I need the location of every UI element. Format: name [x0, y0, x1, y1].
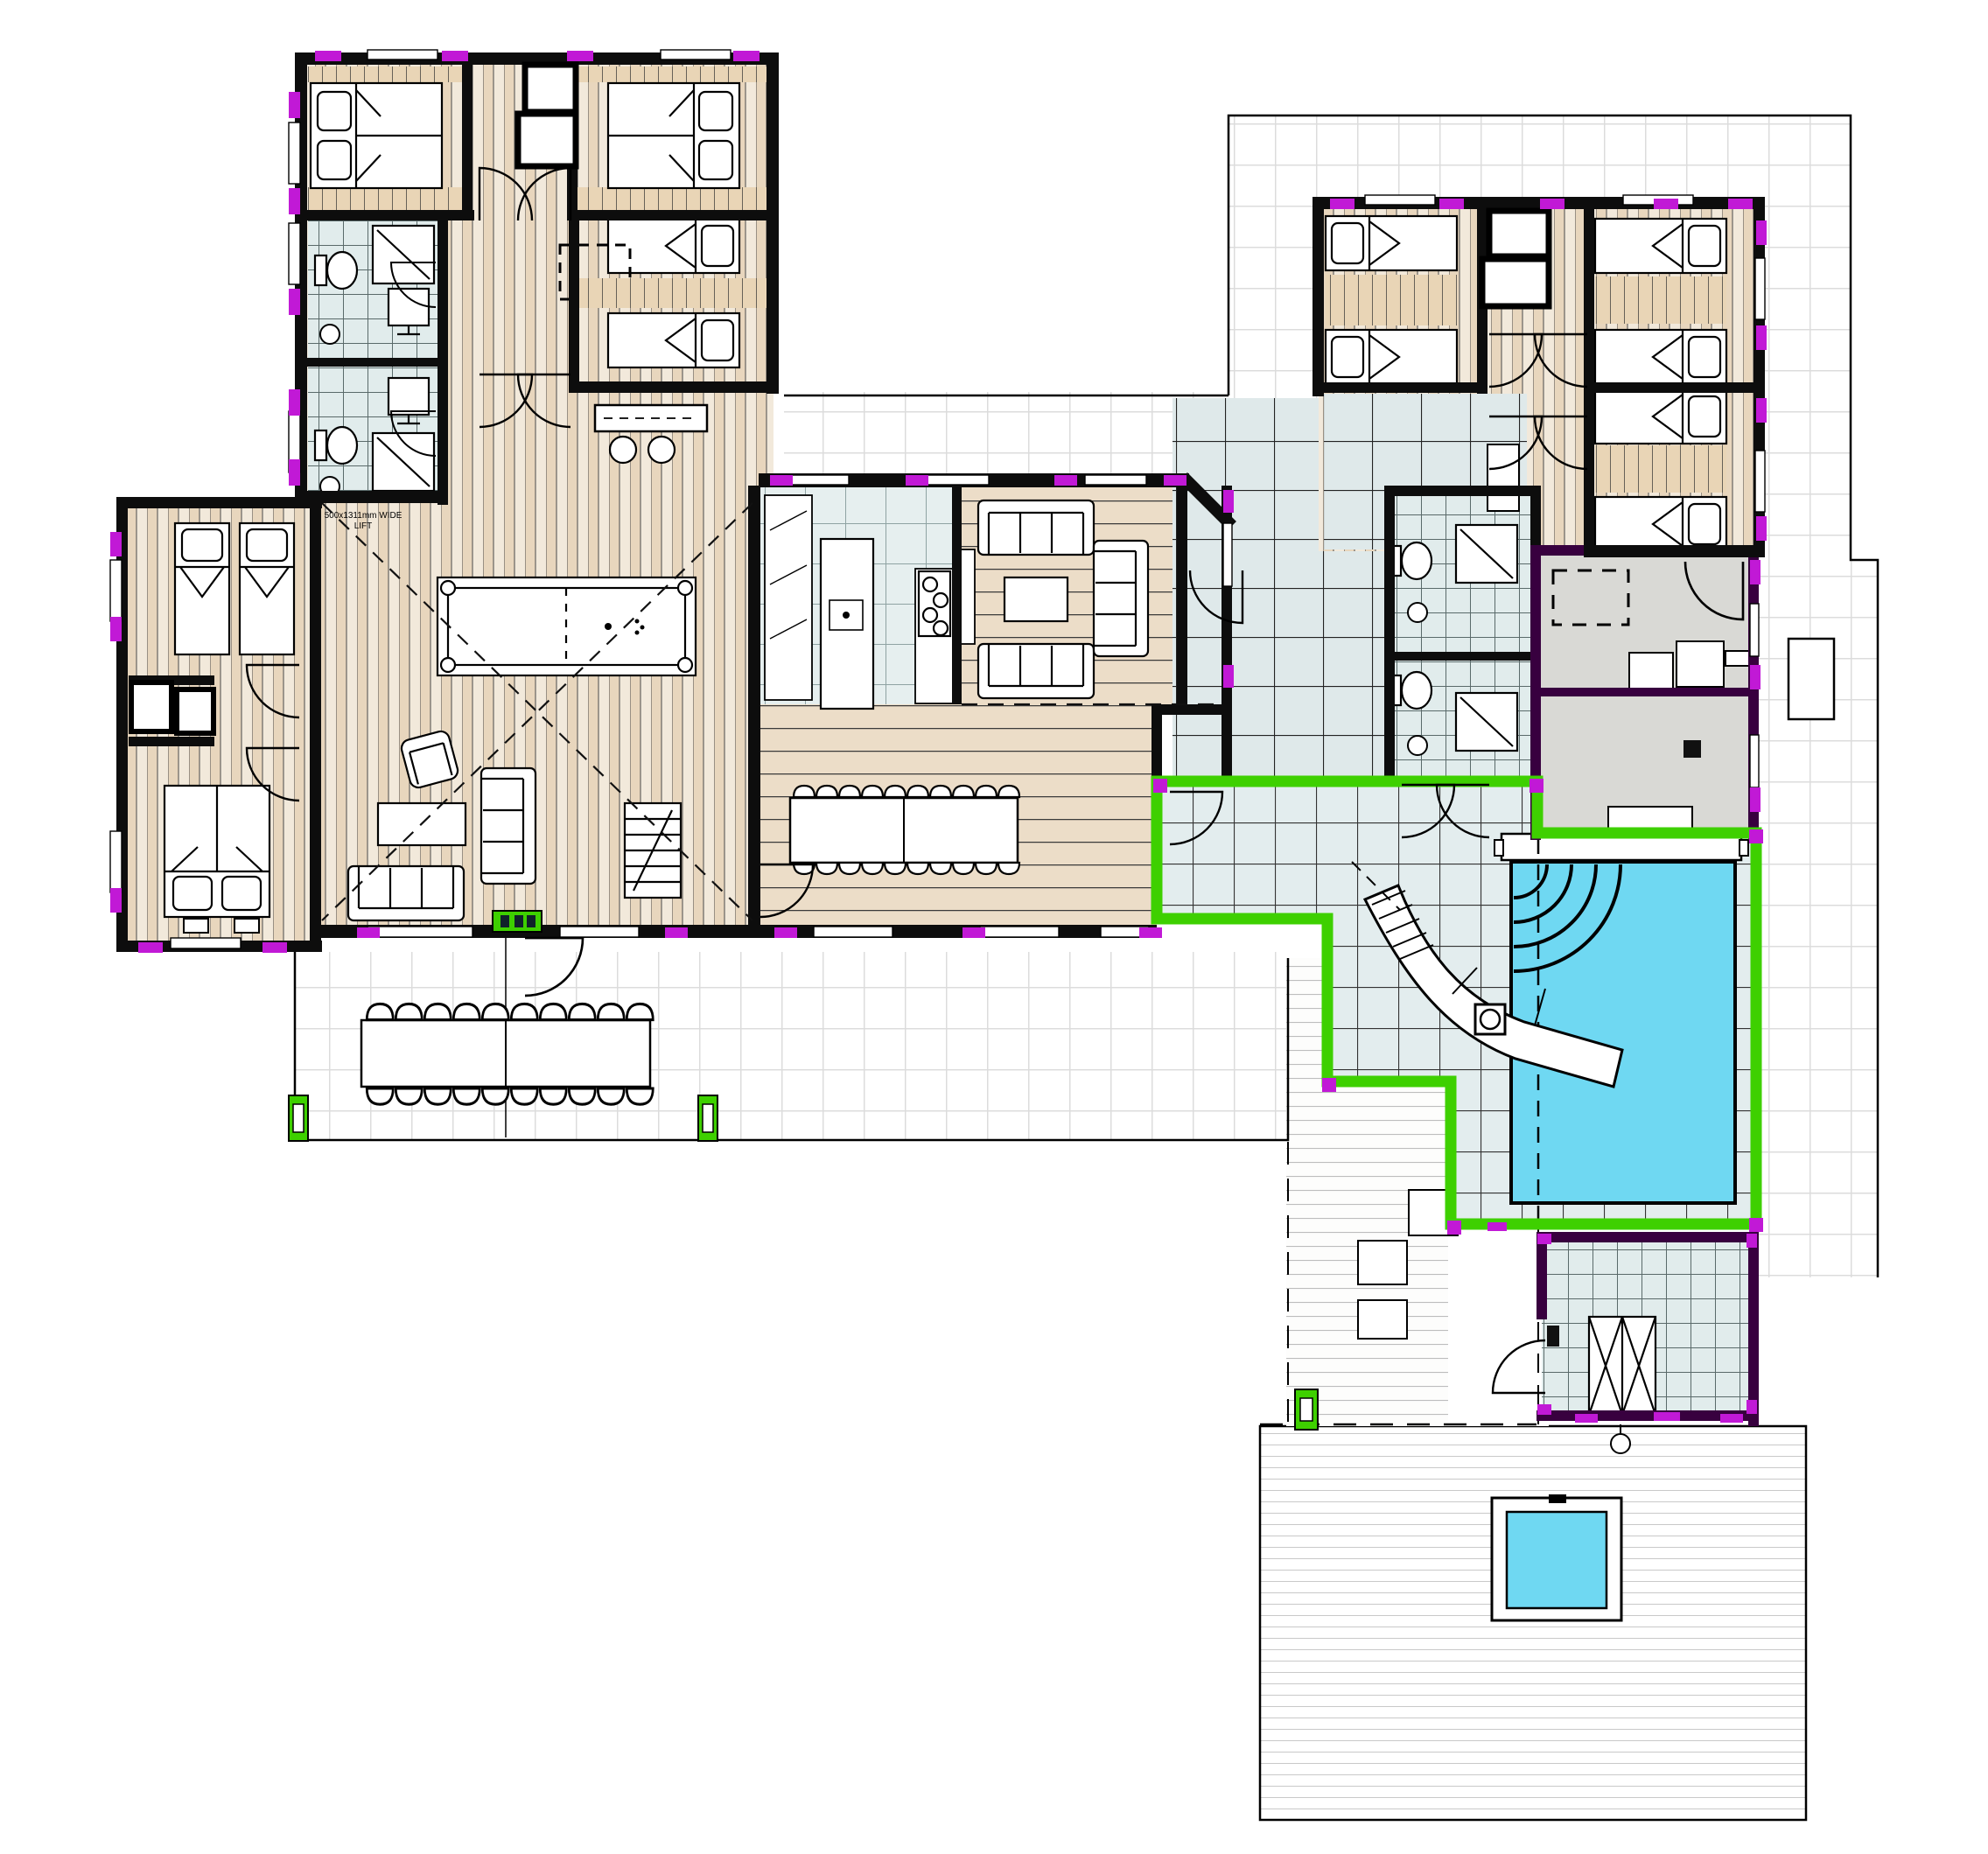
window-sensor — [110, 617, 122, 641]
bed-single — [1595, 389, 1726, 444]
window-sensor — [1756, 398, 1767, 423]
window-sensor — [1750, 787, 1760, 812]
hot-tub-valve — [1549, 1494, 1566, 1503]
toilet — [315, 252, 357, 289]
window-sensor — [1575, 1414, 1598, 1423]
outdoor-chair — [453, 1088, 479, 1104]
hot-tub-water — [1507, 1512, 1606, 1608]
wardrobe-strip — [308, 66, 464, 82]
outdoor-chair — [367, 1004, 393, 1019]
floor-plan-page: 500x1311mm WIDELIFT — [0, 0, 1988, 1854]
sofa-three-seat — [348, 866, 464, 920]
window — [110, 831, 122, 892]
window-sensor — [110, 888, 122, 913]
washer — [1629, 653, 1673, 691]
window-sensor — [315, 51, 341, 61]
window — [560, 927, 639, 937]
outdoor-chair — [395, 1088, 422, 1104]
toilet — [1389, 672, 1431, 709]
nightstand — [184, 919, 208, 933]
window-sensor — [1728, 199, 1753, 209]
outdoor-chair — [598, 1088, 624, 1104]
hall-bench — [1487, 444, 1519, 511]
wash-basin — [1408, 736, 1427, 755]
wardrobe-strip — [577, 187, 766, 210]
window — [1223, 523, 1232, 586]
dining-chair — [839, 863, 860, 874]
window-sensor — [1654, 1412, 1680, 1421]
outdoor-chair — [569, 1004, 595, 1019]
wall — [129, 737, 214, 746]
window — [1755, 258, 1765, 319]
window-sensor — [1756, 220, 1767, 245]
shower — [373, 226, 434, 283]
window-sensor — [1654, 199, 1678, 209]
shelf — [1725, 651, 1752, 666]
window-sensor — [1746, 1400, 1757, 1414]
dining-chair — [998, 786, 1019, 797]
dining-chair — [976, 786, 997, 797]
outdoor-chair — [511, 1088, 537, 1104]
terrace-walkway — [784, 392, 1228, 487]
window — [1750, 604, 1759, 656]
outdoor-chair — [626, 1004, 653, 1019]
deck-lounger — [1358, 1241, 1407, 1284]
dining-chair — [907, 786, 928, 797]
window-sensor — [1756, 516, 1767, 541]
deck-step-inner — [1300, 1398, 1312, 1421]
billiard-table — [437, 577, 696, 675]
window-sensor — [1330, 199, 1354, 209]
wall — [569, 381, 779, 393]
outdoor-chair — [598, 1004, 624, 1019]
bed-single — [608, 219, 739, 273]
wall — [1384, 652, 1537, 661]
deck-lower — [1260, 1426, 1806, 1820]
window — [1755, 451, 1765, 512]
electrical-panel-glyph — [514, 915, 523, 927]
wardrobe-strip — [1326, 275, 1457, 325]
terrace-bench — [1788, 639, 1834, 719]
wall — [952, 487, 962, 704]
window-sensor — [1749, 829, 1763, 843]
window — [367, 50, 437, 59]
window-sensor — [1054, 475, 1077, 486]
wall — [1584, 545, 1765, 557]
stool — [648, 437, 675, 463]
island-tap — [843, 612, 850, 619]
outdoor-chair — [482, 1088, 508, 1104]
diving-board-tab — [1739, 840, 1748, 856]
cooktop — [919, 571, 950, 636]
window-sensor — [262, 942, 287, 953]
wall — [310, 497, 321, 952]
outdoor-chair — [424, 1088, 451, 1104]
window — [814, 927, 892, 937]
window — [1750, 735, 1759, 787]
dining-chair — [998, 863, 1019, 874]
window-sensor — [1756, 325, 1767, 350]
window — [171, 938, 241, 948]
bed-single — [1595, 330, 1726, 384]
window-sensor — [733, 51, 759, 61]
window-sensor — [289, 188, 300, 214]
closet-box — [1489, 211, 1549, 256]
dining-chair — [862, 863, 883, 874]
closet-box — [1482, 259, 1549, 306]
outdoor-shower — [1611, 1434, 1630, 1453]
window-sensor — [110, 532, 122, 556]
wall-purple — [1536, 1232, 1759, 1242]
wall-purple — [1536, 1232, 1547, 1319]
dining-chair — [885, 863, 906, 874]
sauna-stove — [1683, 740, 1701, 758]
dining-chair — [953, 863, 974, 874]
wall-purple — [1530, 688, 1759, 696]
bed-single — [1595, 497, 1726, 551]
dining-chair — [885, 786, 906, 797]
bed-double — [311, 83, 442, 188]
window-sensor — [357, 927, 380, 938]
terrace-step-inner — [293, 1104, 304, 1132]
wall — [569, 210, 579, 393]
wall — [1384, 486, 1395, 781]
closet-box — [131, 682, 171, 731]
dining-chair — [794, 786, 815, 797]
electrical-panel-glyph — [500, 915, 509, 927]
window-sensor — [1164, 475, 1186, 486]
window-sensor — [289, 389, 300, 416]
outdoor-chair — [626, 1088, 653, 1104]
outdoor-chair — [511, 1004, 537, 1019]
window-sensor — [1447, 1221, 1461, 1235]
window-sensor — [1439, 199, 1464, 209]
dining-chair — [862, 786, 883, 797]
window-sensor — [289, 289, 300, 315]
window-sensor — [1720, 1414, 1743, 1423]
window-sensor — [1153, 779, 1167, 793]
bed-double — [164, 786, 269, 917]
closet-box — [177, 689, 213, 733]
wardrobe-strip — [1595, 445, 1726, 493]
wall — [766, 52, 779, 394]
wall — [1312, 197, 1324, 396]
wall — [1151, 704, 1232, 715]
dining-chair — [816, 786, 837, 797]
wash-basin — [320, 325, 339, 344]
window-sensor — [1223, 665, 1234, 688]
outdoor-chair — [540, 1004, 566, 1019]
deck-lounger — [1358, 1300, 1407, 1339]
bed-double — [608, 83, 739, 188]
dining-chair — [839, 786, 860, 797]
bed-single — [608, 313, 739, 367]
window — [367, 927, 472, 937]
wall — [1384, 486, 1537, 496]
locker-x — [1589, 1317, 1655, 1415]
nightstand — [234, 919, 259, 933]
window — [289, 223, 300, 284]
floor-plan-drawing: 500x1311mm WIDELIFT — [0, 0, 1988, 1854]
window — [661, 50, 731, 59]
window-sensor — [289, 92, 300, 118]
bed-single — [1326, 216, 1457, 270]
kitchen-counter — [765, 495, 812, 700]
wall — [1584, 207, 1594, 557]
wall — [462, 65, 472, 220]
outdoor-chair — [367, 1088, 393, 1104]
outdoor-chair — [395, 1004, 422, 1019]
wardrobe-strip — [1595, 276, 1726, 324]
wall — [569, 210, 779, 220]
electrical-panel-glyph — [527, 915, 535, 927]
terrace-step-inner — [703, 1104, 713, 1132]
wall — [306, 210, 474, 220]
wall-purple — [1748, 1232, 1759, 1426]
window-sensor — [962, 927, 985, 938]
dining-chair — [930, 786, 951, 797]
dining-chair — [976, 863, 997, 874]
window-sensor — [1223, 490, 1234, 513]
lift-label-line1: 500x1311mm WIDE — [325, 511, 402, 521]
window-sensor — [1749, 1218, 1763, 1232]
toilet — [315, 427, 357, 464]
window-sensor — [770, 475, 793, 486]
window-sensor — [1746, 1234, 1757, 1248]
toilet — [1389, 542, 1431, 579]
sofa-two-seat — [1094, 541, 1148, 656]
dining-chair — [930, 863, 951, 874]
window-sensor — [1750, 665, 1760, 689]
window-sensor — [1540, 199, 1564, 209]
window — [787, 475, 849, 485]
window — [289, 122, 300, 184]
window — [927, 475, 989, 485]
bed-single — [175, 523, 229, 654]
bed-single — [240, 523, 294, 654]
window-sensor — [138, 942, 163, 953]
window-sensor — [906, 475, 928, 486]
outdoor-chair — [482, 1004, 508, 1019]
sofa-three-seat — [978, 644, 1094, 698]
wall — [748, 486, 760, 938]
diving-board-tab — [1494, 840, 1503, 856]
dining-chair — [816, 863, 837, 874]
shower — [1456, 525, 1517, 583]
wardrobe-strip — [577, 66, 766, 82]
window-sensor — [1537, 1404, 1551, 1415]
wall — [1594, 382, 1753, 393]
wardrobe-strip — [577, 278, 766, 308]
shower — [1456, 693, 1517, 751]
dining-chair — [953, 786, 974, 797]
window-sensor — [1537, 1234, 1551, 1244]
closet-box — [518, 114, 576, 166]
wall — [116, 497, 322, 508]
yard-plain — [1448, 1228, 1549, 1426]
outdoor-chair — [569, 1088, 595, 1104]
sofa-three-seat — [978, 500, 1094, 555]
window-sensor — [1529, 779, 1543, 793]
closet-box — [525, 65, 576, 112]
bed-single — [1595, 219, 1726, 273]
bed-single — [1326, 330, 1457, 384]
window — [1085, 475, 1146, 485]
dining-chair — [907, 863, 928, 874]
window — [1365, 195, 1435, 205]
wall — [1324, 382, 1487, 393]
window-sensor — [1139, 927, 1162, 938]
tv-console — [961, 549, 975, 644]
window-sensor — [665, 927, 688, 938]
window-sensor — [289, 459, 300, 486]
window — [110, 560, 122, 621]
sofa-two-seat — [481, 768, 535, 884]
window-sensor — [442, 51, 468, 61]
wardrobe-strip — [308, 187, 464, 210]
window — [980, 927, 1059, 937]
stool — [610, 437, 636, 463]
window-sensor — [1750, 560, 1760, 584]
lift-label-line2: LIFT — [354, 521, 373, 531]
window-sensor — [1487, 1222, 1507, 1231]
window-sensor — [774, 927, 797, 938]
coffee-table — [1004, 577, 1067, 621]
wall — [1177, 487, 1187, 706]
window-sensor — [567, 51, 593, 61]
outdoor-chair — [453, 1004, 479, 1019]
window-sensor — [1322, 1078, 1336, 1092]
outdoor-chair — [424, 1004, 451, 1019]
dryer — [1676, 641, 1724, 687]
wash-basin — [1408, 603, 1427, 622]
changing-knob — [1547, 1326, 1559, 1347]
stairs — [625, 803, 681, 898]
wall — [306, 358, 448, 367]
outdoor-chair — [540, 1088, 566, 1104]
